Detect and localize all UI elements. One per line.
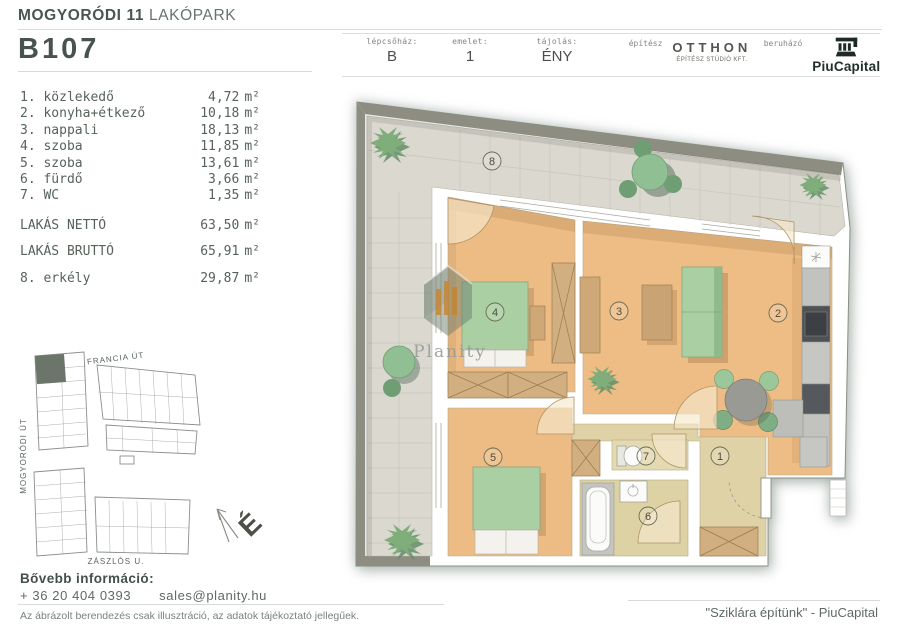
- orientation-label: tájolás:: [537, 37, 578, 46]
- room-number-1: 1: [711, 447, 729, 465]
- room-area: 18,13: [200, 123, 239, 138]
- room-area-list: 1. közlekedő4,72m² 2. konyha+étkező10,18…: [20, 90, 260, 287]
- staircase-value: B: [387, 48, 397, 65]
- net-label: LAKÁS NETTÓ: [20, 218, 106, 234]
- room-row: 5. szoba13,61m²: [20, 156, 260, 172]
- room-area: 4,72: [208, 90, 239, 105]
- compass: É: [196, 462, 286, 567]
- coffee-table: [642, 285, 672, 340]
- svg-text:4: 4: [492, 307, 498, 319]
- wardrobe-room4-right: [552, 263, 575, 363]
- staircase-label: lépcsőház:: [366, 37, 417, 46]
- area-unit: m²: [244, 156, 260, 171]
- svg-text:3: 3: [616, 306, 622, 318]
- floor-label: emelet:: [452, 37, 488, 46]
- bed-room5: [473, 467, 540, 530]
- balcony-row: 8. erkély29,87m²: [20, 271, 260, 287]
- project-title: MOGYORÓDI 11 LAKÓPARK: [18, 7, 236, 25]
- area-unit: m²: [244, 188, 260, 203]
- wardrobe-corridor: [572, 440, 600, 476]
- sitemap-highlight-unit: [35, 354, 66, 384]
- footer-quote: "Sziklára építünk" - PiuCapital: [705, 605, 878, 620]
- nightstand: [530, 306, 545, 340]
- balcony-area: 29,87: [200, 271, 239, 286]
- balcony-shadow-left: [365, 121, 372, 556]
- architect-name: OTTHON: [672, 40, 751, 55]
- gross-area: 65,91: [200, 244, 239, 259]
- developer-logo: PiuCapital: [812, 36, 880, 74]
- developer-name: PiuCapital: [812, 59, 880, 74]
- contact-heading: Bővebb információ:: [20, 571, 154, 586]
- room-label: 2. konyha+étkező: [20, 106, 145, 122]
- orientation-value: ÉNY: [542, 48, 573, 65]
- room-label: 6. fürdő: [20, 172, 83, 188]
- area-unit: m²: [244, 123, 260, 138]
- room-row: 3. nappali18,13m²: [20, 123, 260, 139]
- room-area: 3,66: [208, 172, 239, 187]
- area-unit: m²: [244, 244, 260, 259]
- net-area-row: LAKÁS NETTÓ63,50m²: [20, 218, 260, 234]
- svg-text:2: 2: [775, 308, 781, 320]
- room-area: 11,85: [200, 139, 239, 154]
- wardrobe-band: [448, 372, 567, 398]
- parapet-left: [356, 102, 365, 566]
- area-unit: m²: [244, 172, 260, 187]
- watermark-text: Planity: [413, 342, 487, 362]
- svg-text:7: 7: [643, 451, 649, 463]
- room-number-4: 4: [486, 303, 504, 321]
- bathtub: [582, 483, 614, 555]
- room-number-7: 7: [637, 447, 655, 465]
- info-cell-staircase: lépcsőház: B: [342, 34, 442, 76]
- flyer-page: MOGYORÓDI 11 LAKÓPARK B107 lépcsőház: B …: [0, 0, 900, 636]
- info-cell-developer: beruházó PiuCapital: [764, 34, 880, 76]
- architect-logo: OTTHON ÉPÍTÉSZ STÚDIÓ KFT.: [672, 40, 751, 63]
- tv-stand: [580, 277, 600, 353]
- contact-line: + 36 20 404 0393 sales@planity.hu: [20, 588, 267, 603]
- footer-divider-right: [628, 600, 880, 601]
- room-label: 5. szoba: [20, 156, 83, 172]
- info-cell-floor: emelet: 1: [442, 34, 498, 76]
- svg-text:5: 5: [490, 452, 496, 464]
- contact-email[interactable]: sales@planity.hu: [159, 588, 267, 603]
- unit-id: B107: [18, 33, 99, 66]
- floor-value: 1: [466, 48, 474, 65]
- area-unit: m²: [244, 139, 260, 154]
- room-label: 3. nappali: [20, 123, 98, 139]
- room-row: 4. szoba11,85m²: [20, 139, 260, 155]
- unit-divider: [18, 71, 312, 72]
- svg-text:1: 1: [717, 451, 723, 463]
- room-label: 1. közlekedő: [20, 90, 114, 106]
- disclaimer: Az ábrázolt berendezés csak illusztráció…: [20, 610, 359, 622]
- room-label: 7. WC: [20, 188, 59, 204]
- unit-info-table: lépcsőház: B emelet: 1 tájolás: ÉNY épít…: [342, 33, 880, 77]
- area-unit: m²: [244, 218, 260, 233]
- room-row: 1. közlekedő4,72m²: [20, 90, 260, 106]
- parapet-bottom: [356, 556, 430, 566]
- washbasin: [620, 481, 647, 502]
- room-area: 10,18: [200, 106, 239, 121]
- project-title-bold: MOGYORÓDI 11: [18, 7, 144, 24]
- room-row: 2. konyha+étkező10,18m²: [20, 106, 260, 122]
- bed-foot-room5: [475, 530, 538, 554]
- room-number-5: 5: [484, 448, 502, 466]
- wardrobe-hall: [700, 527, 758, 556]
- room-label: 4. szoba: [20, 139, 83, 155]
- architect-label: építész: [629, 39, 663, 48]
- svg-text:8: 8: [489, 156, 495, 168]
- piucapital-logo-icon: [832, 36, 860, 58]
- info-cell-orientation: tájolás: ÉNY: [498, 34, 616, 76]
- area-unit: m²: [244, 90, 260, 105]
- developer-label: beruházó: [764, 39, 803, 48]
- sitemap-building-annex: [106, 425, 197, 454]
- area-unit: m²: [244, 106, 260, 121]
- street-label-bottom: ZÁSZLÓS U.: [88, 557, 145, 566]
- room-row: 6. fürdő3,66m²: [20, 172, 260, 188]
- net-area: 63,50: [200, 218, 239, 233]
- entry-landing: [830, 480, 846, 516]
- street-label-left: MOGYORÓDI ÚT: [19, 418, 28, 494]
- project-title-rest: LAKÓPARK: [149, 7, 236, 24]
- info-cell-architect: építész OTTHON ÉPÍTÉSZ STÚDIÓ KFT.: [616, 34, 764, 76]
- svg-text:6: 6: [645, 511, 651, 523]
- room-row: 7. WC1,35m²: [20, 188, 260, 204]
- north-arrow-icon: [217, 509, 238, 542]
- room-number-8: 8: [483, 152, 501, 170]
- floor-plan: Planity 1 2 3 4 5 6 7 8: [340, 88, 896, 588]
- contact-phone: + 36 20 404 0393: [20, 588, 131, 603]
- header-divider: [18, 29, 882, 30]
- room-area: 13,61: [200, 156, 239, 171]
- gross-label: LAKÁS BRUTTÓ: [20, 244, 114, 260]
- sitemap-courtyard: [120, 456, 134, 464]
- room-number-2: 2: [769, 304, 787, 322]
- room-area: 1,35: [208, 188, 239, 203]
- street-label-top: FRANCIA ÚT: [87, 351, 145, 367]
- balcony-label: 8. erkély: [20, 271, 90, 287]
- footer-divider-left: [18, 604, 444, 605]
- room-number-3: 3: [610, 302, 628, 320]
- architect-sub: ÉPÍTÉSZ STÚDIÓ KFT.: [672, 57, 751, 63]
- area-unit: m²: [244, 271, 260, 286]
- room-number-6: 6: [639, 507, 657, 525]
- gross-area-row: LAKÁS BRUTTÓ65,91m²: [20, 244, 260, 260]
